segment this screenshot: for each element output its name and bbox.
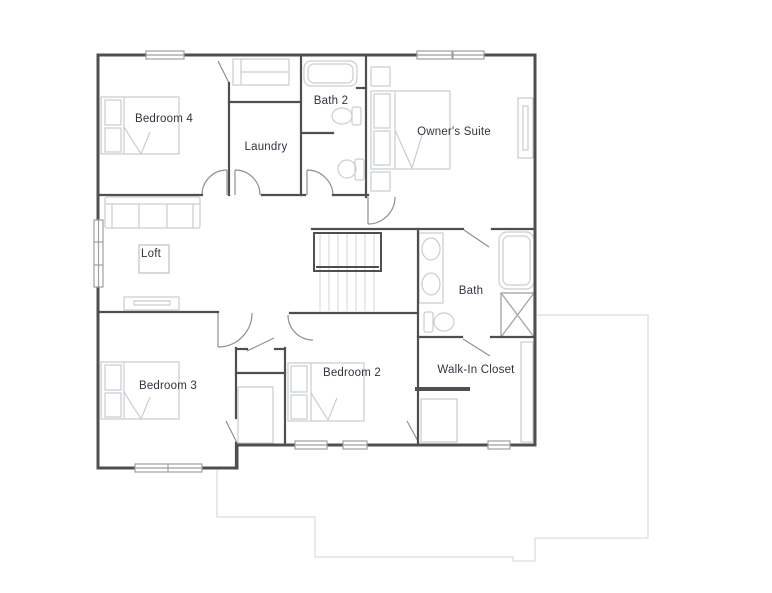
door-leaf-icon [226, 421, 237, 443]
door-arc-icon [202, 170, 227, 195]
window-icon [295, 441, 327, 449]
room-label-bath2: Bath 2 [314, 95, 348, 107]
closet-shelf-icon [238, 387, 273, 443]
closet-shelf-icon [233, 59, 289, 85]
window-icon [94, 220, 103, 287]
room-label-bedroom4: Bedroom 4 [135, 113, 193, 125]
window-icon [135, 464, 202, 472]
doors-group [202, 61, 490, 443]
toilet-icon [332, 107, 361, 125]
tv-console-icon [124, 297, 179, 310]
room-label-loft: Loft [141, 248, 162, 260]
closet-shelf-icon [421, 399, 457, 442]
door-arc-icon [288, 315, 313, 340]
room-label-walk-in-closet: Walk-In Closet [437, 364, 515, 376]
window-icon [417, 51, 452, 59]
nightstand-icon [371, 172, 390, 191]
couch-icon [105, 197, 200, 228]
toilet-icon [424, 312, 454, 332]
door-arc-icon [218, 313, 252, 347]
labels-group: Bedroom 4 Laundry Bath 2 Owner's Suite L… [135, 95, 515, 392]
room-label-bedroom3: Bedroom 3 [139, 380, 197, 392]
window-icon [146, 51, 184, 59]
door-arc-icon [235, 170, 260, 195]
room-label-owners-suite: Owner's Suite [417, 126, 491, 138]
shower-icon [501, 293, 534, 337]
window-icon [453, 51, 484, 59]
door-leaf-icon [464, 230, 489, 247]
lower-floor-outline [217, 315, 648, 561]
closet-shelf-icon [521, 342, 533, 442]
door-leaf-icon [247, 338, 274, 351]
dresser-icon [518, 98, 533, 158]
nightstand-icon [371, 67, 390, 86]
room-label-bedroom2: Bedroom 2 [323, 367, 381, 379]
bathtub-icon [499, 232, 534, 289]
bathtub-icon [304, 61, 357, 86]
window-icon [343, 441, 367, 449]
floor-plan-viewport: Bedroom 4 Laundry Bath 2 Owner's Suite L… [0, 0, 772, 593]
floor-plan-svg: Bedroom 4 Laundry Bath 2 Owner's Suite L… [0, 0, 772, 593]
stairs-icon [314, 233, 381, 311]
room-label-laundry: Laundry [245, 141, 288, 153]
bed-icon [101, 97, 179, 154]
door-leaf-icon [463, 339, 490, 356]
room-label-bath: Bath [459, 285, 483, 297]
door-arc-icon [307, 170, 333, 195]
window-icon [488, 441, 510, 449]
double-vanity-icon [419, 233, 443, 303]
door-leaf-icon [218, 61, 229, 83]
door-arc-icon [368, 197, 395, 224]
pedestal-sink-icon [338, 159, 364, 180]
